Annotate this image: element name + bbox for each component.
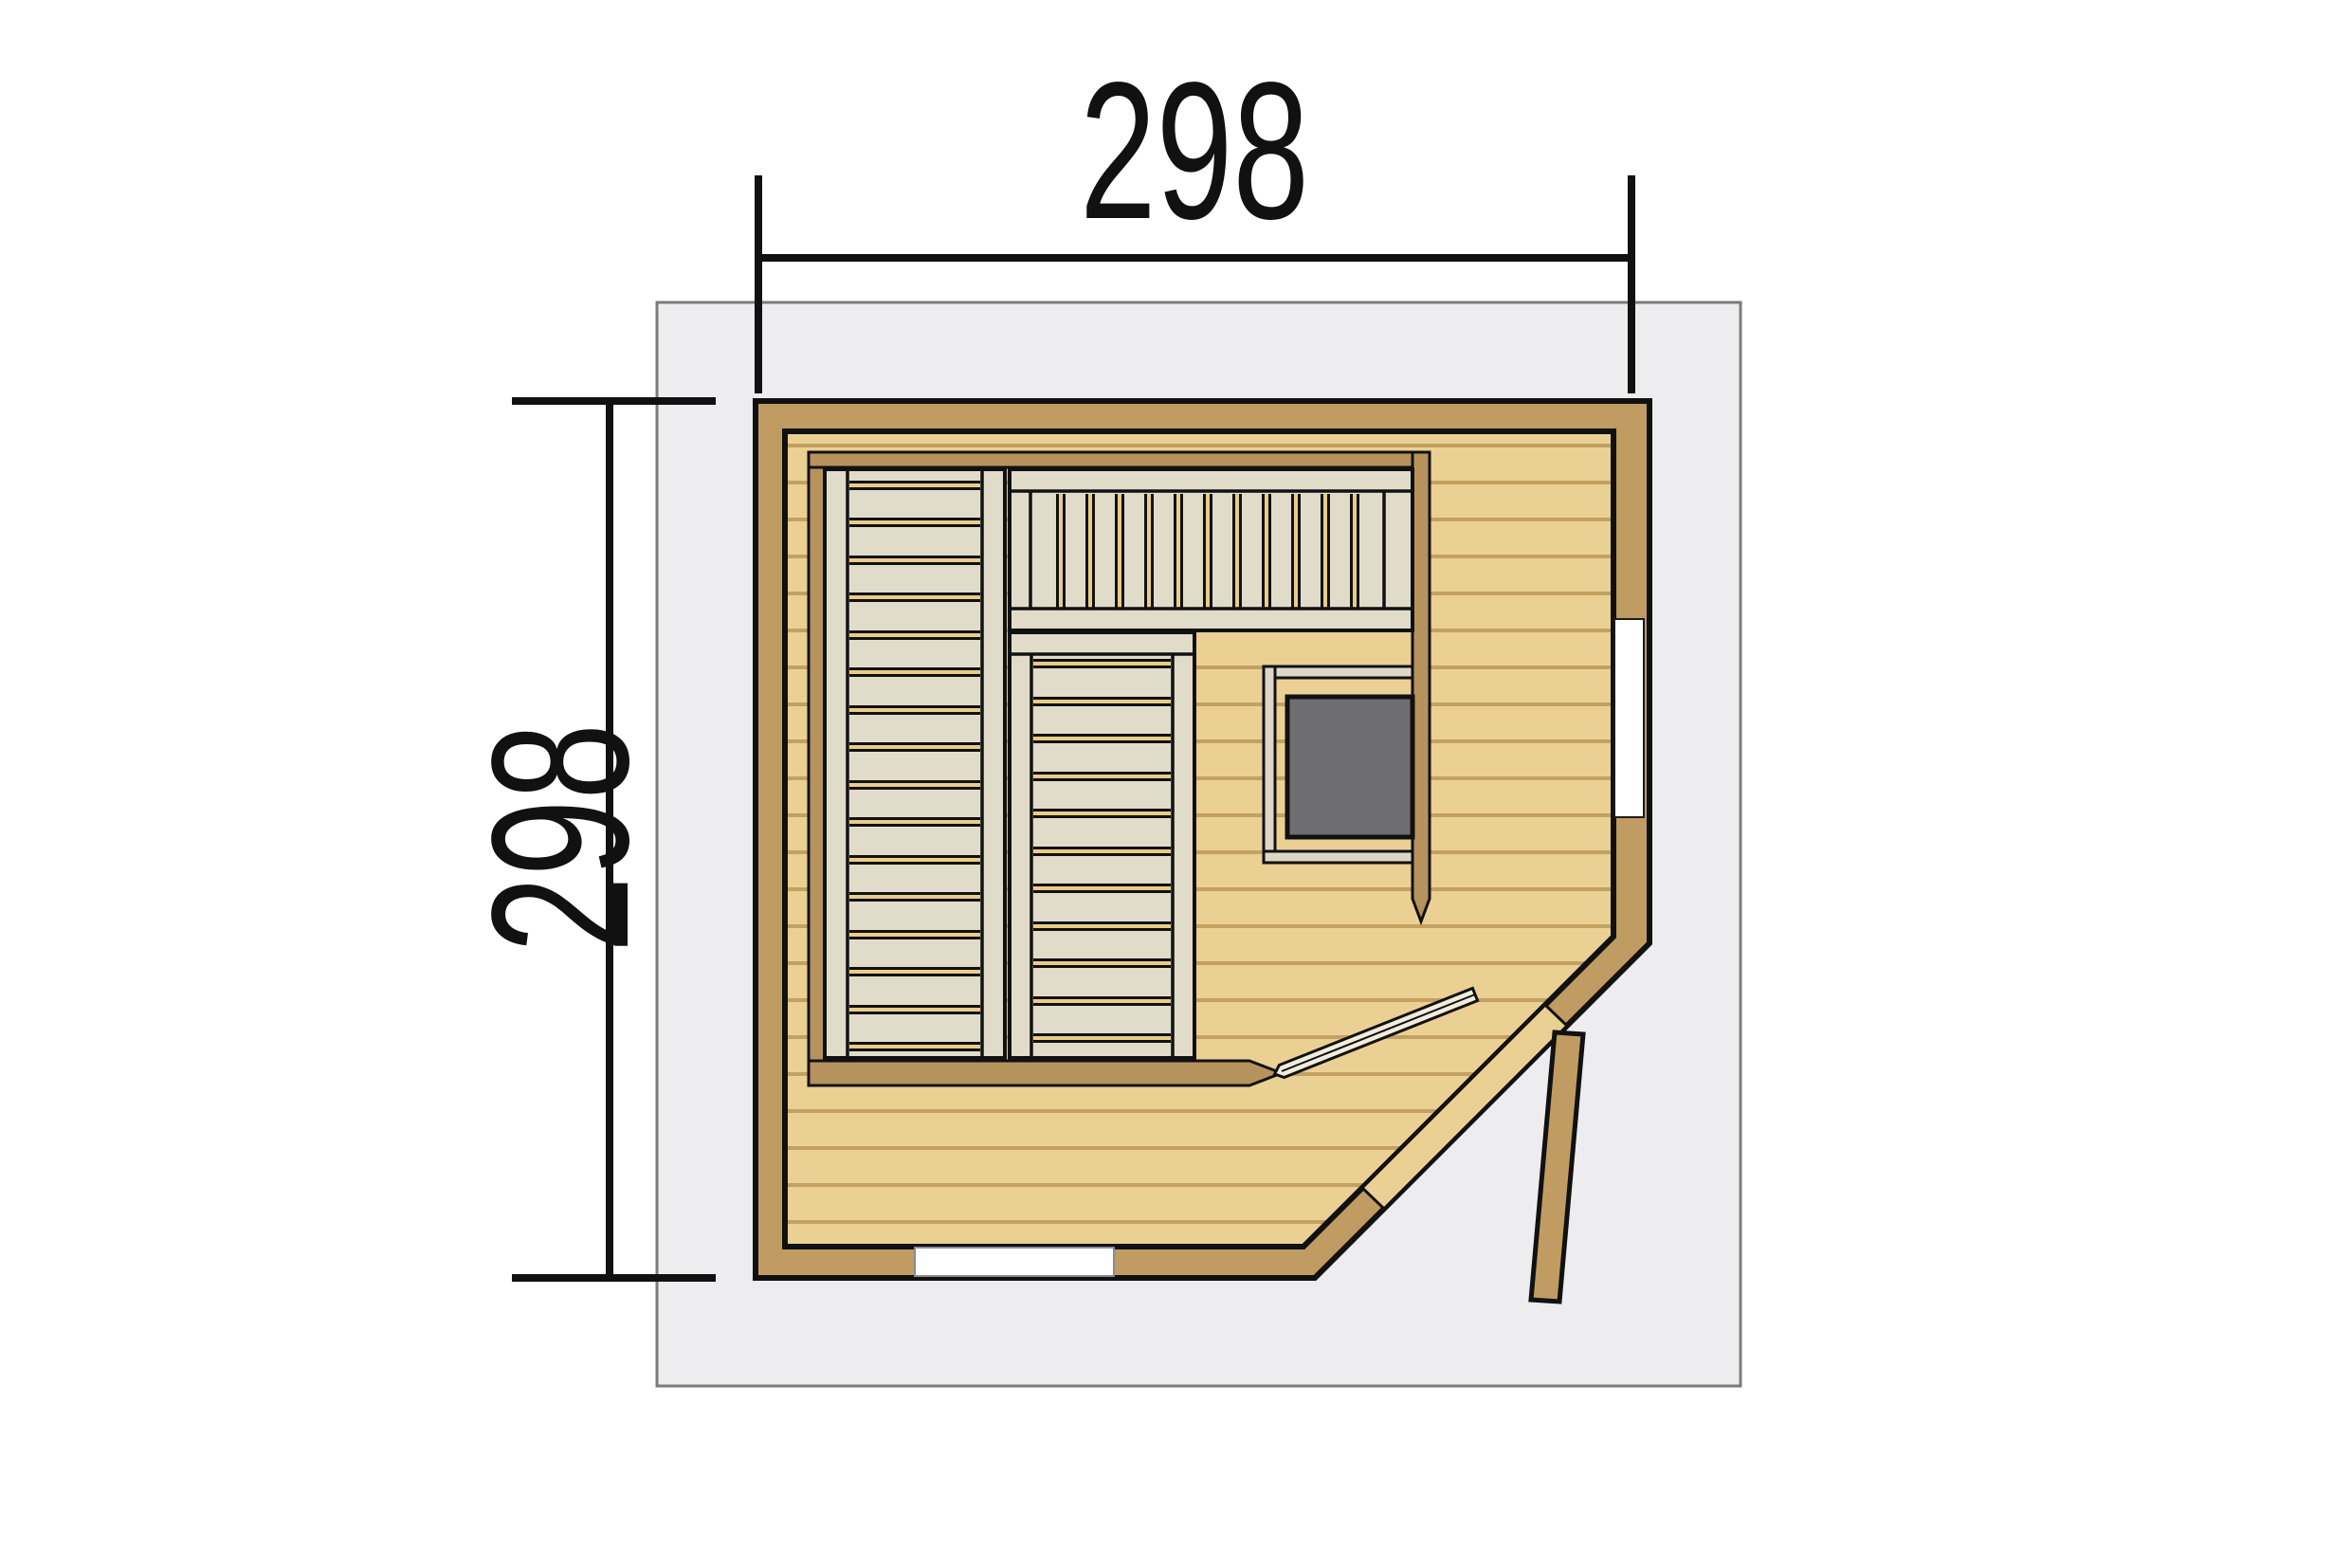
sauna-floor-plan-page: 298 298: [0, 0, 2351, 1568]
bottom-wall-vent: [915, 1248, 1114, 1276]
top-bench: [1010, 469, 1412, 630]
stove-guard-top: [1264, 666, 1412, 678]
floor-plan-canvas: 298 298: [0, 0, 2351, 1568]
bench-platform-left-frame: [809, 452, 825, 1085]
middle-bench: [1010, 632, 1194, 1058]
dimension-width-value: 298: [1080, 42, 1309, 260]
left-bench: [825, 469, 1005, 1058]
bench-platform-top-frame: [809, 452, 1430, 467]
bench-partition-wall: [1412, 452, 1430, 921]
middle-bench-base: [1010, 632, 1194, 1058]
right-wall-window: [1614, 619, 1644, 817]
dimension-height-value: 298: [451, 723, 669, 953]
stove: [1287, 697, 1412, 837]
stove-guard-bottom: [1264, 851, 1412, 863]
stove-guard-left: [1264, 666, 1275, 863]
bench-front-board: [809, 1061, 1282, 1085]
